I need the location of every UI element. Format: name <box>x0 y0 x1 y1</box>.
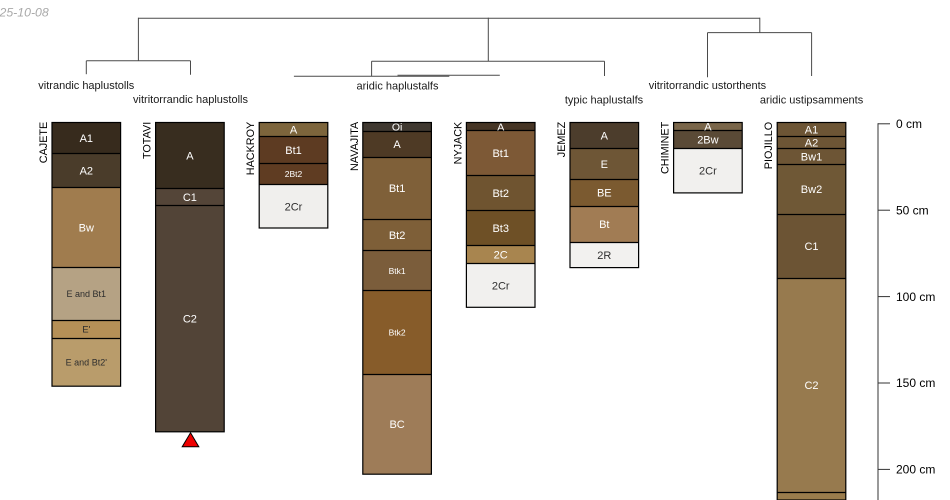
svg-text:2Cr: 2Cr <box>285 201 303 213</box>
svg-text:CHIMINET: CHIMINET <box>660 121 672 174</box>
svg-text:150 cm: 150 cm <box>896 376 935 390</box>
svg-text:Bw1: Bw1 <box>801 151 822 163</box>
svg-text:2Bt2: 2Bt2 <box>285 169 303 179</box>
svg-text:A: A <box>393 139 401 151</box>
svg-text:E': E' <box>82 325 90 336</box>
svg-text:200 cm: 200 cm <box>896 463 935 477</box>
svg-text:vitritorrandic ustorthents: vitritorrandic ustorthents <box>649 80 767 92</box>
svg-text:Bt1: Bt1 <box>389 183 406 195</box>
svg-text:NAVAJITA: NAVAJITA <box>349 121 361 171</box>
svg-text:50 cm: 50 cm <box>896 203 929 217</box>
svg-text:C1: C1 <box>183 192 197 204</box>
svg-text:vitritorrandic haplustolls: vitritorrandic haplustolls <box>133 94 248 106</box>
svg-text:Bw: Bw <box>79 223 94 235</box>
svg-text:Bt3: Bt3 <box>492 223 509 235</box>
svg-text:2Bw: 2Bw <box>697 134 718 146</box>
svg-text:Bt1: Bt1 <box>285 145 302 157</box>
svg-text:PIOJILLO: PIOJILLO <box>763 122 775 169</box>
svg-text:100 cm: 100 cm <box>896 290 935 304</box>
svg-text:2Cr: 2Cr <box>699 165 717 177</box>
svg-text:Bt2: Bt2 <box>492 188 509 200</box>
svg-text:0 cm: 0 cm <box>896 117 922 131</box>
svg-text:A: A <box>704 121 712 133</box>
svg-text:CAJETE: CAJETE <box>38 122 50 163</box>
svg-text:C2: C2 <box>183 314 197 326</box>
svg-text:A: A <box>186 150 194 162</box>
svg-text:Bw2: Bw2 <box>801 184 822 196</box>
svg-text:BE: BE <box>597 188 612 200</box>
svg-text:A2: A2 <box>805 138 818 150</box>
svg-text:aridic ustipsamments: aridic ustipsamments <box>760 95 864 107</box>
svg-text:Bt1: Bt1 <box>492 148 509 160</box>
svg-text:2R: 2R <box>597 250 611 262</box>
svg-text:Bt2: Bt2 <box>389 230 406 242</box>
svg-text:vitrandic haplustolls: vitrandic haplustolls <box>38 80 134 92</box>
svg-text:JEMEZ: JEMEZ <box>556 121 568 157</box>
svg-text:Btk2: Btk2 <box>389 328 406 338</box>
svg-text:aridic haplustalfs: aridic haplustalfs <box>357 81 439 93</box>
svg-text:A: A <box>290 125 298 137</box>
svg-text:E: E <box>601 159 608 171</box>
svg-text:typic haplustalfs: typic haplustalfs <box>565 94 644 106</box>
svg-text:A: A <box>497 121 504 133</box>
svg-text:A1: A1 <box>80 133 93 145</box>
svg-text:C2: C2 <box>804 380 818 392</box>
svg-text:HACKROY: HACKROY <box>245 122 257 175</box>
svg-text:E and Bt2': E and Bt2' <box>66 357 108 367</box>
svg-text:2Cr: 2Cr <box>492 280 510 292</box>
svg-text:E and Bt1: E and Bt1 <box>67 289 107 299</box>
svg-text:BC: BC <box>389 419 404 431</box>
svg-text:NYJACK: NYJACK <box>452 121 464 164</box>
svg-text:A1: A1 <box>805 124 818 136</box>
svg-text:Oi: Oi <box>392 122 403 134</box>
svg-text:A: A <box>601 131 609 143</box>
svg-text:25-10-08: 25-10-08 <box>0 6 49 20</box>
svg-text:Btk1: Btk1 <box>389 266 406 276</box>
svg-text:TOTAVI: TOTAVI <box>142 122 154 159</box>
svg-text:2C: 2C <box>494 249 508 261</box>
svg-text:Bt: Bt <box>599 219 609 231</box>
svg-text:C1: C1 <box>804 241 818 253</box>
svg-text:A2: A2 <box>80 166 93 178</box>
